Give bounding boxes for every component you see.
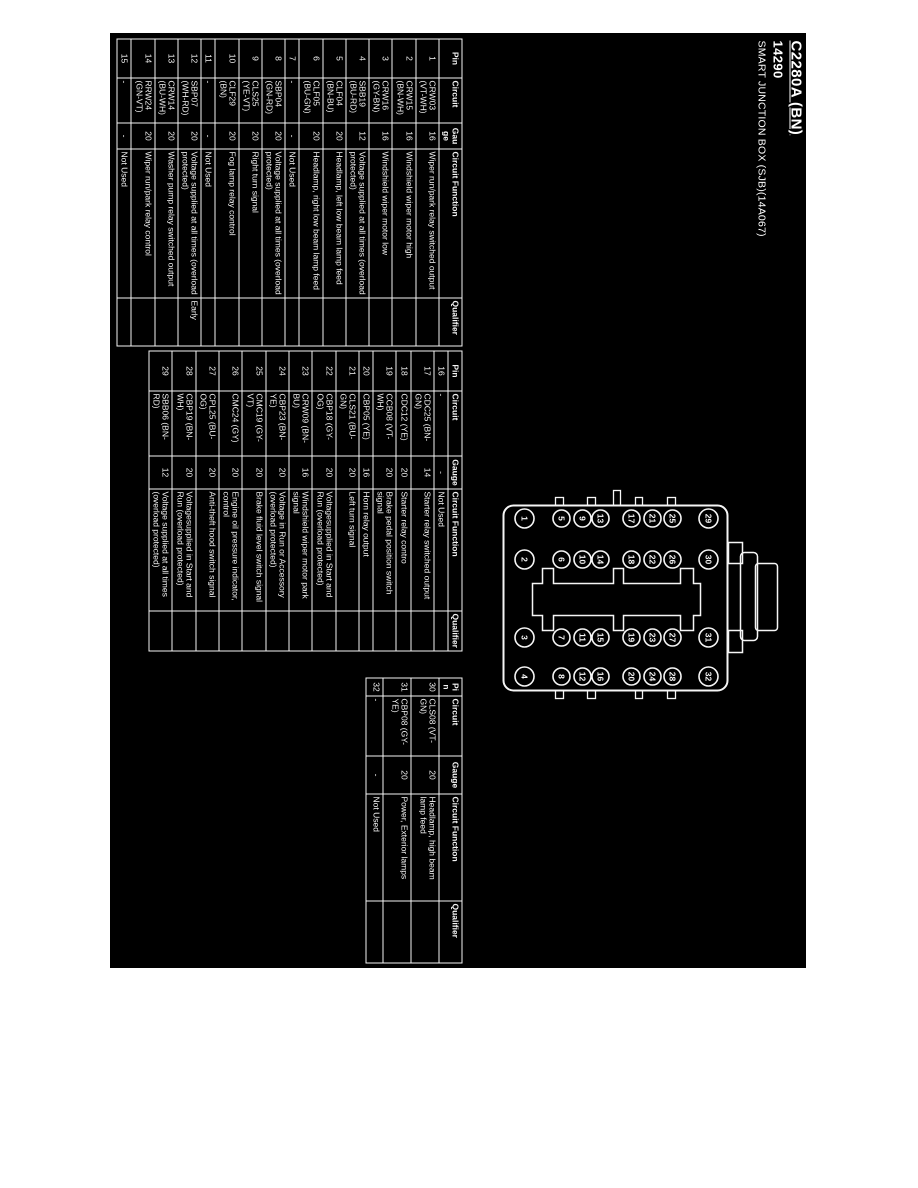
pin-cell: [373, 611, 396, 651]
connector-pin: 17: [623, 510, 640, 527]
pin-cell: CLS08 (VT-GN): [411, 696, 439, 756]
column-header: Gauge: [448, 456, 462, 489]
pin-cell: 20: [154, 123, 177, 149]
pin-cell: Not Used: [117, 149, 131, 298]
pin-cavity-circle: [664, 668, 681, 685]
pin-cell: [345, 298, 368, 346]
column-header: Circuit: [439, 78, 462, 123]
pin-row: 8SBP04 (GN-RD)20Voltage supplied at all …: [261, 39, 284, 346]
pin-row: 22CBP18 (GY-OG)20Voltagesupplied in Star…: [312, 351, 335, 651]
pin-cell: 13: [154, 39, 177, 78]
connector-mount-tab: [635, 497, 642, 505]
pin-cell: Headlamp, left low beam lamp feed: [322, 149, 345, 298]
pin-cell: Windshield wiper motor high: [392, 149, 415, 298]
pin-cell: -: [366, 756, 383, 794]
pin-cell: 20: [131, 123, 154, 149]
pin-cell: 16: [433, 351, 447, 391]
pin-cell: Headlamp, high beam lamp feed: [411, 794, 439, 901]
pin-cell: 20: [322, 123, 345, 149]
pin-cell: Wiper run/park relay switched output: [415, 149, 438, 298]
pin-cell: 3: [369, 39, 392, 78]
pin-cell: Not Used: [433, 489, 447, 611]
pin-cell: [285, 298, 299, 346]
pinout-table-pins-30-32: PinCircuitGaugeCircuit FunctionQualifier…: [365, 677, 462, 963]
pin-row: 4SBB19 (BU-RD)12Voltage supplied at all …: [345, 39, 368, 346]
pin-cavity-circle: [644, 668, 661, 685]
pin-cell: Engine oil pressure indicator, control: [219, 489, 242, 611]
pin-cavity-circle: [553, 551, 570, 568]
pin-cavity-circle: [644, 510, 661, 527]
connector-pin: 23: [644, 629, 661, 646]
pin-row: 23CRW09 (BN-BU)16Windshield wiper motor …: [288, 351, 311, 651]
pin-cell: [154, 298, 177, 346]
pinout-table-pins-16-29: PinCircuitGaugeCircuit FunctionQualifier…: [148, 350, 462, 651]
pin-cell: -: [285, 78, 299, 123]
pin-cell: 27: [195, 351, 218, 391]
connector-pin: 11: [574, 629, 591, 646]
connector-body: [503, 505, 727, 690]
pin-cell: Voltagesupplied in Start and Run (overlo…: [172, 489, 195, 611]
pin-number: 7: [556, 635, 566, 640]
pin-cell: SBP07 (WH-RD): [177, 78, 200, 123]
pin-cell: Voltage supplied at all times (overload …: [149, 489, 172, 611]
pin-cell: [410, 611, 433, 651]
pin-cell: 30: [411, 678, 439, 696]
pin-row: 12SBP07 (WH-RD)20Voltage supplied at all…: [177, 39, 200, 346]
pin-number: 8: [556, 674, 566, 679]
pin-cell: 4: [345, 39, 368, 78]
connector-pin: 25: [664, 510, 681, 527]
pin-cell: CMC19 (GY-VT): [242, 391, 265, 456]
column-header: Pin: [439, 39, 462, 78]
pin-cell: CDC12 (YE): [396, 391, 410, 456]
pin-cavity-circle: [623, 629, 640, 646]
pin-cell: [383, 901, 411, 963]
pin-cavity-circle: [699, 550, 718, 569]
pin-row: 5CLF04 (BN-BU)20Headlamp, left low beam …: [322, 39, 345, 346]
pin-cell: -: [366, 696, 383, 756]
pin-cell: Starter relay contro: [396, 489, 410, 611]
connector-mount-tab: [587, 497, 595, 505]
pin-number: 32: [703, 671, 713, 681]
pin-cell: [299, 298, 322, 346]
pin-cell: [335, 611, 358, 651]
column-header: Qualifier: [439, 298, 462, 346]
column-header: Pin: [448, 351, 462, 391]
pin-cell: [396, 611, 410, 651]
pin-cell: [358, 611, 372, 651]
pin-cell: 24: [265, 351, 288, 391]
pin-cell: RRW24 (GN-VT): [131, 78, 154, 123]
pin-cavity-circle: [515, 667, 534, 686]
pin-cell: [369, 298, 392, 346]
pin-cell: Wiper run/park relay control: [131, 149, 154, 298]
pin-cavity-circle: [592, 629, 609, 646]
pin-cell: [215, 298, 238, 346]
part-number: 14290: [770, 40, 785, 236]
pin-cell: 16: [369, 123, 392, 149]
connector-bracket-plate: [740, 552, 757, 640]
header-row: PinCircuitGaugeCircuit FunctionQualifier: [448, 351, 462, 651]
pin-cavity-circle: [592, 668, 609, 685]
connector-pin: 4: [515, 667, 534, 686]
pin-number: 10: [577, 554, 587, 564]
pin-cell: 20: [177, 123, 200, 149]
pin-cavity-circle: [515, 550, 534, 569]
pin-cell: Brake fluid level switch signal: [242, 489, 265, 611]
pin-cavity-circle: [574, 668, 591, 685]
pin-cell: 20: [411, 756, 439, 794]
connector-pin: 13: [592, 510, 609, 527]
pin-cell: CBP23 (BN-YE): [265, 391, 288, 456]
pin-cell: 17: [410, 351, 433, 391]
pin-cell: [322, 298, 345, 346]
pin-cell: [238, 298, 261, 346]
pin-row: 6CLF05 (BU-GN)20Headlamp, right low beam…: [299, 39, 322, 346]
pin-number: 30: [703, 554, 713, 564]
pin-row: 13CRW14 (BU-WH)20Washer pump relay switc…: [154, 39, 177, 346]
pin-cell: 26: [219, 351, 242, 391]
pin-cell: 20: [195, 456, 218, 489]
pin-number: 4: [519, 674, 529, 679]
pin-cell: 20: [261, 123, 284, 149]
pin-cavity-circle: [574, 629, 591, 646]
pin-number: 19: [626, 632, 636, 642]
connector-bracket-block: [755, 563, 777, 630]
pin-cell: CBP19 (BN-WH): [172, 391, 195, 456]
pin-cell: Windshield wiper motor low: [369, 149, 392, 298]
pin-cell: [392, 298, 415, 346]
pin-cavity-circle: [664, 629, 681, 646]
pin-number: 5: [556, 516, 566, 521]
connector-pin: 32: [699, 667, 718, 686]
pin-cell: 20: [373, 456, 396, 489]
pin-row: 27CPL25 (BU-OG)20Anti-theft hood switch …: [195, 351, 218, 651]
pin-cell: Horn relay output: [358, 489, 372, 611]
pin-number: 16: [595, 671, 605, 681]
pin-row: 26CMC24 (GY)20Engine oil pressure indica…: [219, 351, 242, 651]
connector-pin: 27: [664, 629, 681, 646]
pin-cavity-circle: [553, 510, 570, 527]
pin-cavity-circle: [574, 551, 591, 568]
pin-row: 14RRW24 (GN-VT)20Wiper run/park relay co…: [131, 39, 154, 346]
pin-row: 20CBP05 (YE)16Horn relay output: [358, 351, 372, 651]
pin-number: 24: [647, 671, 657, 681]
column-header: Gauge: [439, 756, 462, 794]
pin-cell: Anti-theft hood switch signal: [195, 489, 218, 611]
pin-cell: CRW09 (BN-BU): [288, 391, 311, 456]
pin-cell: 10: [215, 39, 238, 78]
pin-cell: CRW15 (BN-WH): [392, 78, 415, 123]
connector-pin: 28: [664, 668, 681, 685]
pin-cell: 20: [312, 456, 335, 489]
pin-cell: [261, 298, 284, 346]
pin-cell: CRW16 (GY-BN): [369, 78, 392, 123]
pin-cell: 14: [131, 39, 154, 78]
pin-cell: 1: [415, 39, 438, 78]
pin-cell: 20: [219, 456, 242, 489]
pin-cell: [265, 611, 288, 651]
pin-cell: 20: [172, 456, 195, 489]
connector-pin: 2: [515, 550, 534, 569]
pin-row: 11--Not Used: [201, 39, 215, 346]
pin-cell: 5: [322, 39, 345, 78]
connector-pin: 24: [644, 668, 661, 685]
pin-cell: 2: [392, 39, 415, 78]
pin-row: 32--Not Used: [366, 678, 383, 963]
pin-cell: CRW03 (VT-WH): [415, 78, 438, 123]
pin-cavity-circle: [574, 510, 591, 527]
pin-cell: -: [285, 123, 299, 149]
title-block: C2280A (BN) 14290 SMART JUNCTION BOX (SJ…: [755, 40, 804, 236]
pin-cell: CBP08 (GY-YE): [383, 696, 411, 756]
pin-cavity-circle: [623, 668, 640, 685]
connector-pin: 14: [592, 551, 609, 568]
pin-cell: Left turn signal: [335, 489, 358, 611]
pin-cavity-circle: [592, 551, 609, 568]
pin-cavity-circle: [644, 629, 661, 646]
pin-cell: CLS21 (BU-GN): [335, 391, 358, 456]
pin-cell: 20: [335, 456, 358, 489]
pin-row: 29SBB06 (BN-RD)12Voltage supplied at all…: [149, 351, 172, 651]
pin-number: 11: [577, 633, 587, 642]
pin-cell: 16: [392, 123, 415, 149]
pin-cell: 8: [261, 39, 284, 78]
pin-row: 28CBP19 (BN-WH)20Voltagesupplied in Star…: [172, 351, 195, 651]
pin-cell: [117, 298, 131, 346]
connector-bracket-tab: [728, 542, 742, 563]
pin-cavity-circle: [699, 667, 718, 686]
pin-cell: [149, 611, 172, 651]
pin-cell: CMC24 (GY): [219, 391, 242, 456]
pin-cell: 22: [312, 351, 335, 391]
pin-cavity-circle: [623, 551, 640, 568]
pin-number: 6: [556, 557, 566, 562]
pin-cell: Right turn signal: [238, 149, 261, 298]
rotated-document: C2280A (BN) 14290 SMART JUNCTION BOX (SJ…: [110, 33, 806, 968]
column-header: Circuit Function: [448, 489, 462, 611]
pin-cell: 20: [383, 756, 411, 794]
pin-number: 27: [667, 632, 677, 642]
connector-pin: 16: [592, 668, 609, 685]
pin-cell: CDC25 (BN-GN): [410, 391, 433, 456]
pin-row: 31CBP08 (GY-YE)20Power, Exterior lamps: [383, 678, 411, 963]
pin-number: 23: [647, 632, 657, 642]
pin-number: 28: [667, 671, 677, 681]
pin-cavity-circle: [699, 509, 718, 528]
pin-cell: [433, 611, 447, 651]
pin-cell: Not Used: [285, 149, 299, 298]
pin-cell: -: [433, 456, 447, 489]
pin-cell: Voltagesupplied in Start and Run (overlo…: [312, 489, 335, 611]
pin-cavity-circle: [699, 628, 718, 647]
pin-cell: Brake pedal position switch signal: [373, 489, 396, 611]
pin-cell: -: [433, 391, 447, 456]
pin-cell: [219, 611, 242, 651]
connector-mount-tab: [555, 690, 563, 698]
pin-cell: 31: [383, 678, 411, 696]
pin-cavity-circle: [644, 551, 661, 568]
pin-cavity-circle: [553, 629, 570, 646]
pin-cell: [312, 611, 335, 651]
connector-pin: 22: [644, 551, 661, 568]
pin-cell: [415, 298, 438, 346]
connector-pin: 9: [574, 510, 591, 527]
pin-cell: Voltage in Run or Accessory (overload pr…: [265, 489, 288, 611]
connector-mount-tab: [667, 497, 675, 505]
pin-cell: Voltage supplied at all times (overload …: [261, 149, 284, 298]
connector-pin: 6: [553, 551, 570, 568]
connector-pin-field: 2930313225262728212223241718192013141516…: [515, 509, 718, 686]
pin-number: 2: [519, 557, 529, 562]
pin-cell: 9: [238, 39, 261, 78]
pin-row: 10CLF29 (BN)20Fog lamp relay control: [215, 39, 238, 346]
pin-cell: 16: [288, 456, 311, 489]
pin-cell: Early: [177, 298, 200, 346]
column-header: Pin: [439, 678, 462, 696]
pin-cell: 20: [265, 456, 288, 489]
pin-cell: 12: [345, 123, 368, 149]
connector-pin: 12: [574, 668, 591, 685]
pin-cell: CRW14 (BU-WH): [154, 78, 177, 123]
pin-cell: CLF05 (BU-GN): [299, 78, 322, 123]
connector-keying-stub: [613, 490, 620, 505]
pinout-table-pins-1-15: PinCircuitGaugeCircuit FunctionQualifier…: [116, 38, 462, 346]
pin-cell: -: [117, 123, 131, 149]
pin-cell: 20: [238, 123, 261, 149]
connector-pin: 3: [515, 628, 534, 647]
pin-cell: Not Used: [366, 794, 383, 901]
connector-mount-tab: [555, 497, 563, 505]
pin-row: 7--Not Used: [285, 39, 299, 346]
pin-cell: 32: [366, 678, 383, 696]
pin-cell: [242, 611, 265, 651]
pin-cell: 29: [149, 351, 172, 391]
pin-cell: 6: [299, 39, 322, 78]
pin-cell: CLF04 (BN-BU): [322, 78, 345, 123]
connector-pin: 15: [592, 629, 609, 646]
connector-pin: 20: [623, 668, 640, 685]
pin-row: 30CLS08 (VT-GN)20Headlamp, high beam lam…: [411, 678, 439, 963]
pin-cell: Not Used: [201, 149, 215, 298]
pin-number: 15: [595, 632, 605, 642]
pin-cell: Windshield wiper motor park signal: [288, 489, 311, 611]
pin-cell: [172, 611, 195, 651]
pin-cell: CLS25 (YE-VT): [238, 78, 261, 123]
pin-row: 3CRW16 (GY-BN)16Windshield wiper motor l…: [369, 39, 392, 346]
pin-cell: Starter relay switched output: [410, 489, 433, 611]
pin-cell: [195, 611, 218, 651]
pin-cell: 18: [396, 351, 410, 391]
pin-cell: Headlamp, right low beam lamp feed: [299, 149, 322, 298]
connector-mount-tab: [587, 690, 595, 698]
pin-cavity-circle: [515, 628, 534, 647]
pin-cavity-circle: [592, 510, 609, 527]
pin-cell: 28: [172, 351, 195, 391]
pin-cell: [411, 901, 439, 963]
pin-row: 9CLS25 (YE-VT)20Right turn signal: [238, 39, 261, 346]
pin-row: 18CDC12 (YE)20Starter relay contro: [396, 351, 410, 651]
connector-pin: 8: [553, 668, 570, 685]
connector-pin: 5: [553, 510, 570, 527]
pin-cell: SBP04 (GN-RD): [261, 78, 284, 123]
header-row: PinCircuitGaugeCircuit FunctionQualifier: [439, 678, 462, 963]
pin-number: 26: [667, 554, 677, 564]
pin-number: 21: [647, 513, 657, 523]
pin-row: 25CMC19 (GY-VT)20Brake fluid level switc…: [242, 351, 265, 651]
pin-row: 21CLS21 (BU-GN)20Left turn signal: [335, 351, 358, 651]
pin-number: 3: [519, 635, 529, 640]
pin-cell: Power, Exterior lamps: [383, 794, 411, 901]
pin-cavity-circle: [623, 510, 640, 527]
pin-row: 17CDC25 (BN-GN)14Starter relay switched …: [410, 351, 433, 651]
pin-cell: 20: [396, 456, 410, 489]
pin-cell: 14: [410, 456, 433, 489]
pin-cell: Washer pump relay switched output: [154, 149, 177, 298]
pin-cell: 25: [242, 351, 265, 391]
component-name: SMART JUNCTION BOX (SJB)(14A067): [755, 40, 767, 236]
pin-cell: -: [117, 78, 131, 123]
pin-cell: 20: [242, 456, 265, 489]
pin-number: 17: [626, 513, 636, 523]
pin-cell: 20: [358, 351, 372, 391]
connector-mount-tab: [635, 690, 642, 698]
pin-number: 31: [703, 632, 713, 642]
pin-cell: 20: [299, 123, 322, 149]
pin-cell: 12: [149, 456, 172, 489]
connector-pin: 21: [644, 510, 661, 527]
pin-number: 22: [647, 554, 657, 564]
pin-cell: SBB19 (BU-RD): [345, 78, 368, 123]
pin-cell: -: [201, 123, 215, 149]
pin-row: 16--Not Used: [433, 351, 447, 651]
column-header: Circuit: [448, 391, 462, 456]
scanned-page-area: C2280A (BN) 14290 SMART JUNCTION BOX (SJ…: [110, 33, 806, 968]
pin-number: 9: [577, 516, 587, 521]
connector-pin: 10: [574, 551, 591, 568]
pin-cell: [131, 298, 154, 346]
pin-cell: 11: [201, 39, 215, 78]
pin-row: 1CRW03 (VT-WH)16Wiper run/park relay swi…: [415, 39, 438, 346]
pin-cavity-circle: [664, 510, 681, 527]
pin-cell: -: [201, 78, 215, 123]
connector-mount-tab: [667, 690, 675, 698]
pin-cell: 19: [373, 351, 396, 391]
connector-bracket-tab: [728, 630, 742, 652]
pin-cavity-circle: [553, 668, 570, 685]
column-header: Circuit Function: [439, 794, 462, 901]
pin-cell: 20: [215, 123, 238, 149]
pin-number: 20: [626, 671, 636, 681]
pin-cell: 16: [358, 456, 372, 489]
pin-cell: 21: [335, 351, 358, 391]
connector-center-channel: [532, 568, 700, 630]
pin-number: 18: [626, 554, 636, 564]
pin-cell: [366, 901, 383, 963]
pin-number: 14: [595, 554, 605, 564]
connector-pin: 1: [515, 509, 534, 528]
pin-cell: CPL25 (BU-OG): [195, 391, 218, 456]
pin-number: 29: [703, 513, 713, 523]
pin-cell: 12: [177, 39, 200, 78]
pin-cell: Voltage supplied at all times (overload …: [177, 149, 200, 298]
pin-number: 13: [595, 513, 605, 523]
connector-pin: 18: [623, 551, 640, 568]
connector-pin: 7: [553, 629, 570, 646]
pin-row: 24CBP23 (BN-YE)20Voltage in Run or Acces…: [265, 351, 288, 651]
connector-pin: 29: [699, 509, 718, 528]
pin-row: 15--Not Used: [117, 39, 131, 346]
